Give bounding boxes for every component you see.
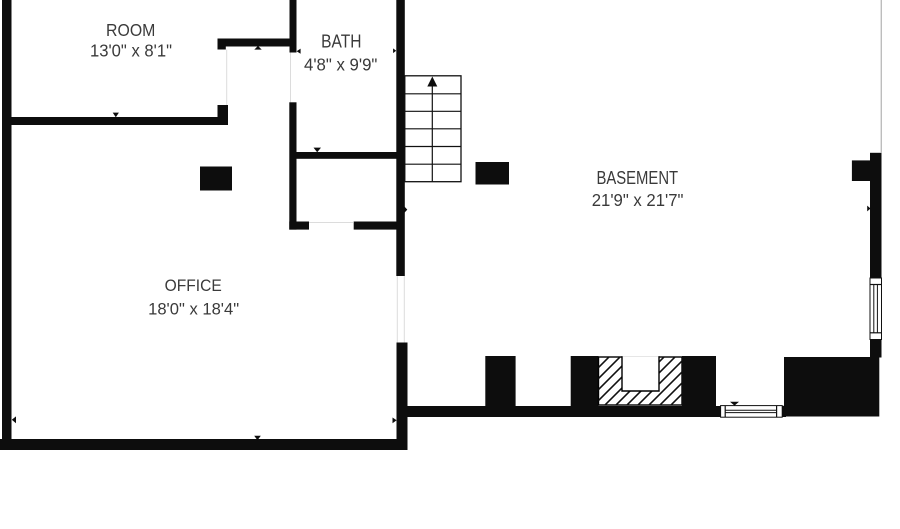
svg-text:13'0" x 8'1": 13'0" x 8'1" bbox=[90, 41, 172, 61]
svg-text:4'8" x 9'9": 4'8" x 9'9" bbox=[304, 54, 377, 74]
svg-text:OFFICE: OFFICE bbox=[165, 276, 222, 295]
svg-text:BATH: BATH bbox=[321, 32, 361, 52]
svg-text:BASEMENT: BASEMENT bbox=[596, 168, 678, 188]
svg-text:21'9" x 21'7": 21'9" x 21'7" bbox=[592, 190, 684, 210]
svg-text:18'0" x 18'4": 18'0" x 18'4" bbox=[148, 300, 239, 319]
svg-text:ROOM: ROOM bbox=[106, 20, 155, 40]
